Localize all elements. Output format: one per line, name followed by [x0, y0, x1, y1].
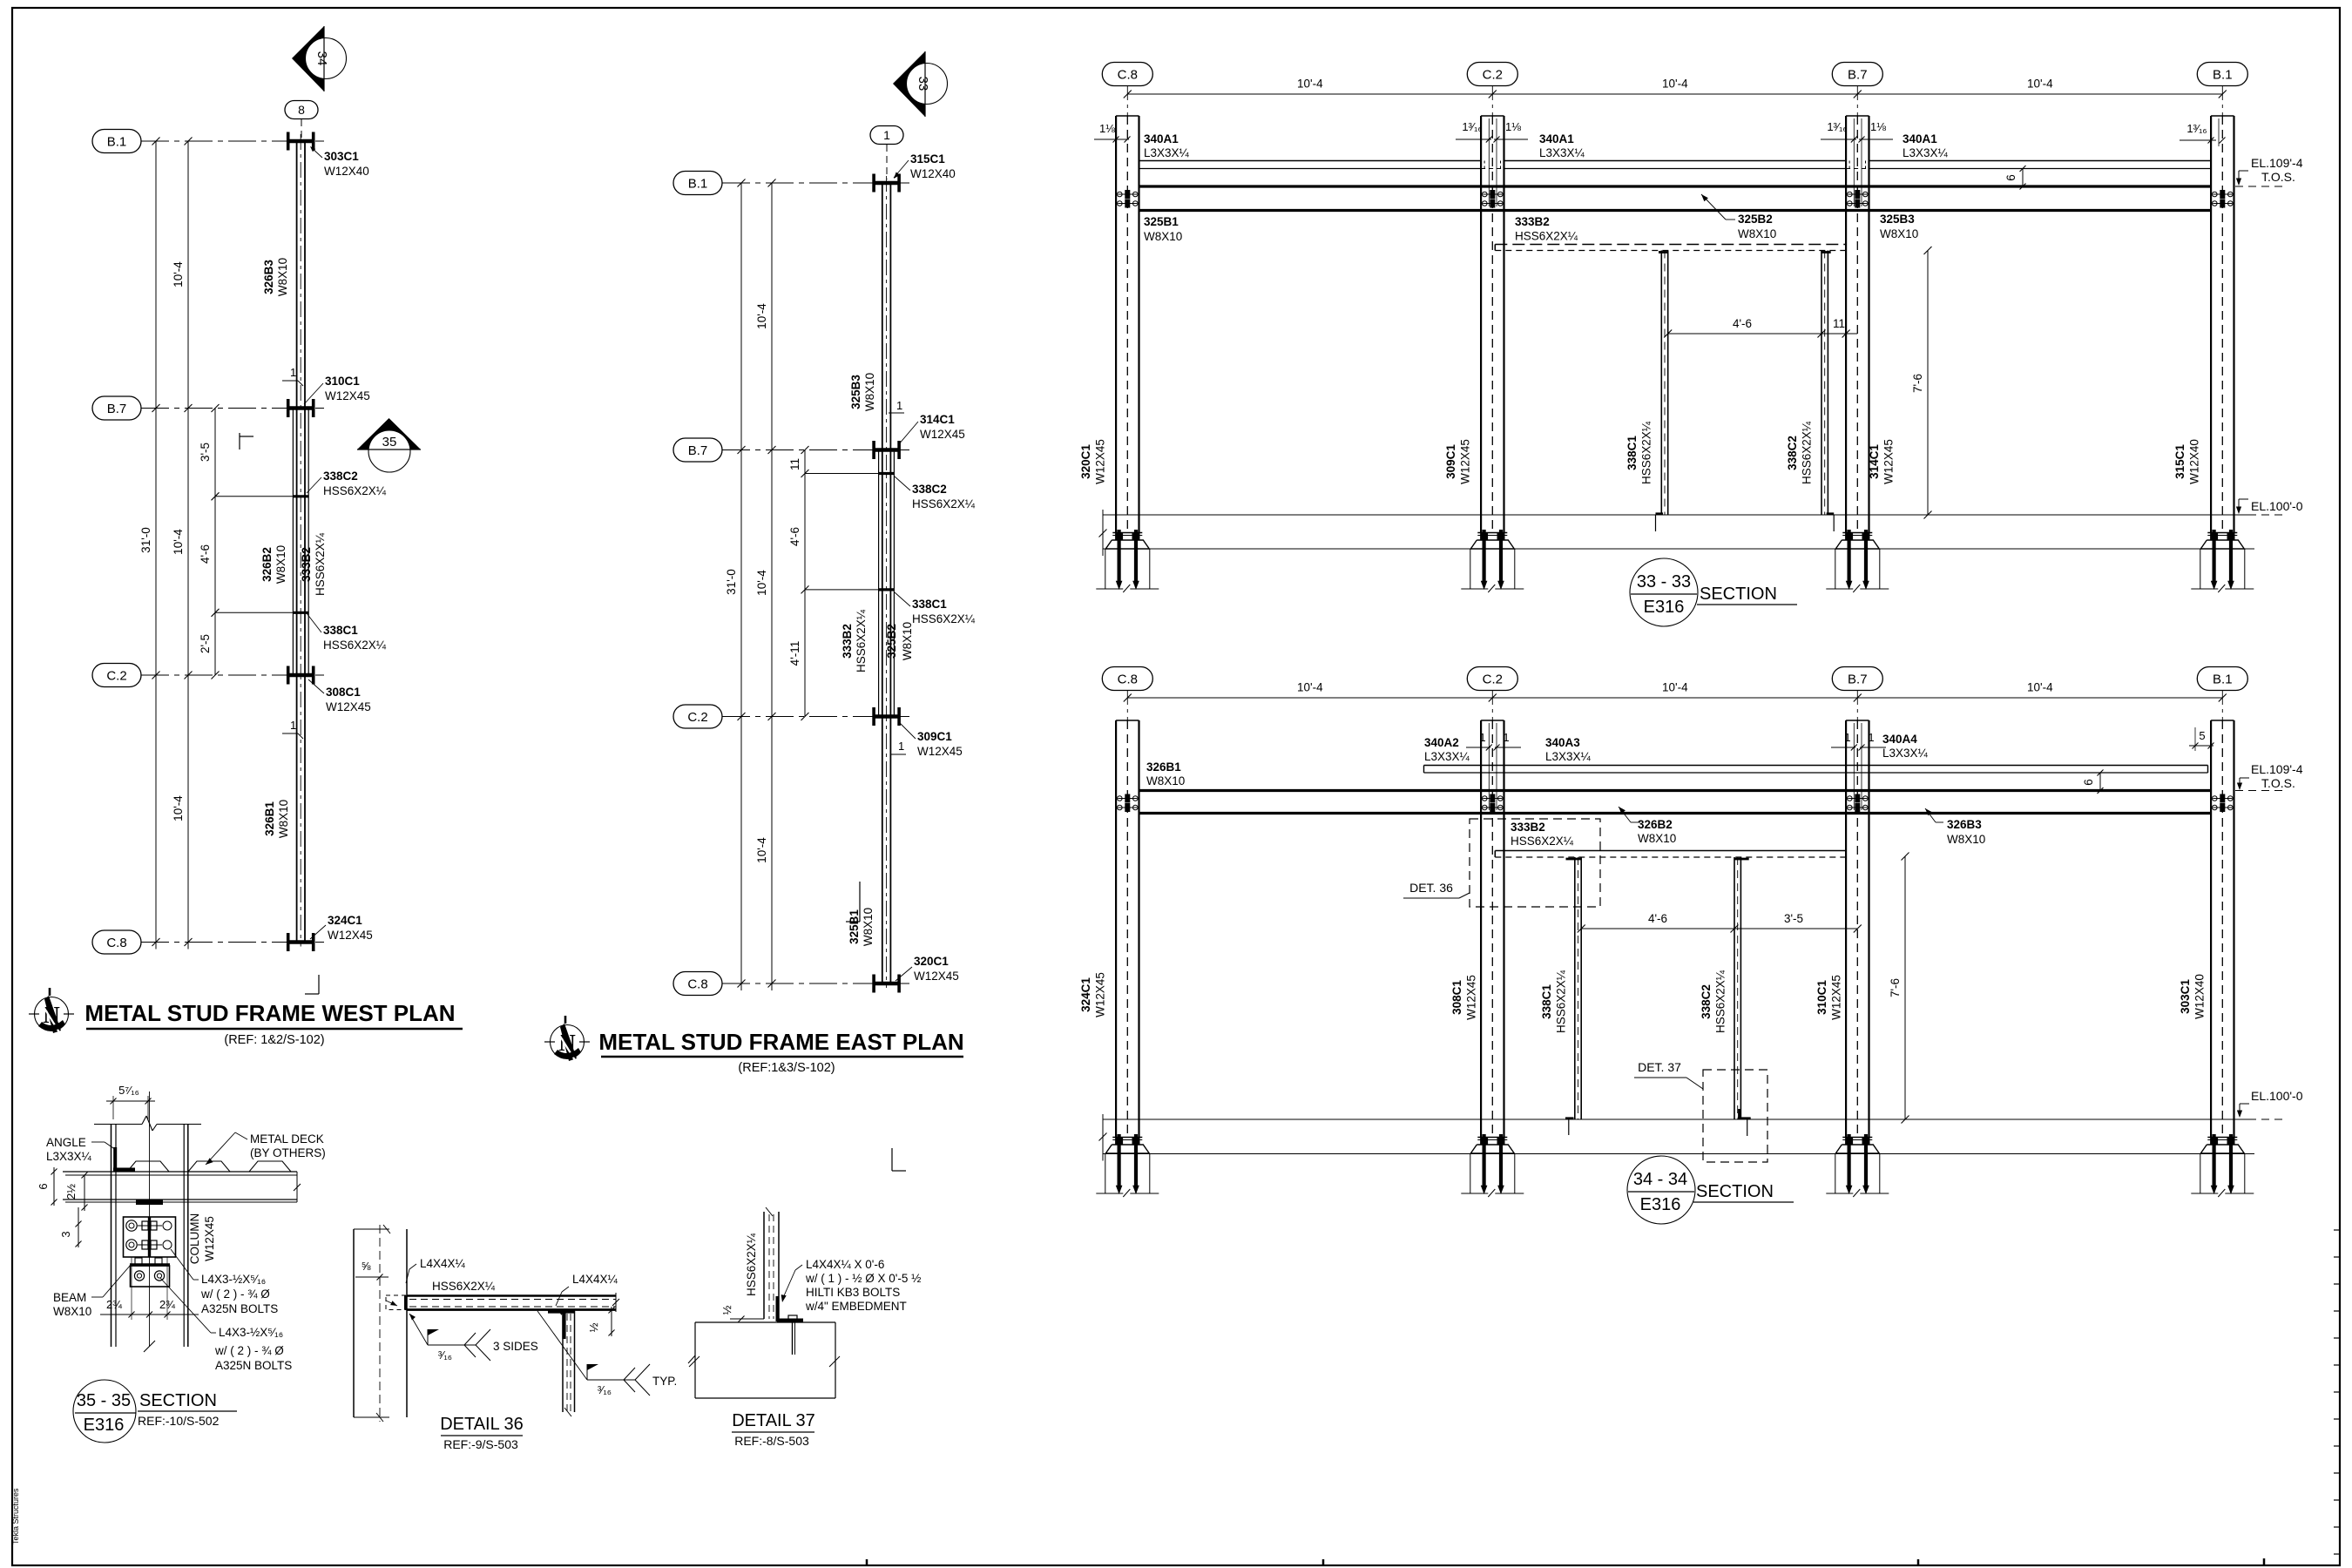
svg-text:B.7: B.7 — [688, 443, 708, 458]
svg-text:3'-5: 3'-5 — [199, 443, 212, 462]
svg-text:338C1: 338C1 — [323, 624, 358, 637]
svg-text:310C1: 310C1 — [325, 375, 360, 388]
svg-text:W8X10: W8X10 — [1146, 774, 1185, 787]
svg-text:3: 3 — [59, 1231, 72, 1237]
svg-text:E316: E316 — [1640, 1195, 1681, 1214]
svg-text:10'-4: 10'-4 — [172, 529, 185, 555]
svg-text:314C1: 314C1 — [1868, 444, 1881, 479]
svg-text:HSS6X2X¼: HSS6X2X¼ — [323, 484, 387, 497]
svg-text:HSS6X2X¼: HSS6X2X¼ — [323, 639, 387, 652]
svg-text:EL.100'-0: EL.100'-0 — [2251, 1089, 2303, 1103]
svg-text:324C1: 324C1 — [328, 914, 362, 927]
svg-text:325B3: 325B3 — [849, 375, 862, 409]
svg-text:W8X10: W8X10 — [1880, 227, 1918, 240]
svg-text:W12X45: W12X45 — [920, 428, 965, 441]
svg-text:W12X45: W12X45 — [1094, 972, 1107, 1017]
svg-text:W8X10: W8X10 — [53, 1305, 91, 1318]
svg-text:METAL DECK: METAL DECK — [250, 1132, 324, 1146]
svg-text:34 - 34: 34 - 34 — [1633, 1170, 1687, 1189]
svg-text:326B2: 326B2 — [260, 547, 274, 582]
svg-text:DET. 37: DET. 37 — [1638, 1060, 1681, 1074]
svg-text:326B1: 326B1 — [263, 801, 276, 836]
svg-text:340A2: 340A2 — [1424, 736, 1459, 749]
svg-text:W12X40: W12X40 — [2193, 974, 2207, 1019]
svg-text:³⁄₁₆: ³⁄₁₆ — [598, 1383, 612, 1396]
svg-text:Tekla Structures: Tekla Structures — [11, 1488, 20, 1544]
svg-text:TYP.: TYP. — [652, 1375, 677, 1388]
svg-text:W12X45: W12X45 — [914, 970, 959, 983]
svg-text:5⁷⁄₁₆: 5⁷⁄₁₆ — [118, 1084, 139, 1097]
svg-text:B.7: B.7 — [107, 402, 127, 416]
svg-text:7'-6: 7'-6 — [1889, 978, 1902, 997]
svg-text:10'-4: 10'-4 — [2027, 681, 2053, 694]
svg-text:320C1: 320C1 — [1079, 444, 1092, 479]
svg-text:L4X3-½X⁵⁄₁₆: L4X3-½X⁵⁄₁₆ — [201, 1273, 266, 1286]
svg-text:W12X40: W12X40 — [2188, 439, 2201, 484]
svg-text:W8X10: W8X10 — [1738, 227, 1776, 240]
svg-text:340A1: 340A1 — [1144, 132, 1179, 145]
svg-text:3'-5: 3'-5 — [1784, 912, 1803, 925]
svg-text:SECTION: SECTION — [139, 1391, 217, 1410]
svg-text:6: 6 — [2082, 779, 2095, 786]
svg-text:326B3: 326B3 — [262, 260, 275, 294]
svg-text:W8X10: W8X10 — [1144, 230, 1182, 243]
svg-text:HSS6X2X¼: HSS6X2X¼ — [745, 1233, 758, 1296]
svg-text:333B2: 333B2 — [1515, 215, 1550, 228]
svg-text:4'-6: 4'-6 — [1648, 912, 1667, 925]
svg-text:w/4" EMBEDMENT: w/4" EMBEDMENT — [805, 1300, 907, 1313]
svg-text:L3X3X¼: L3X3X¼ — [1424, 750, 1470, 763]
svg-text:5: 5 — [2199, 729, 2205, 742]
svg-text:6: 6 — [2004, 174, 2017, 181]
svg-text:33: 33 — [916, 77, 930, 91]
svg-text:REF:-9/S-503: REF:-9/S-503 — [443, 1437, 518, 1451]
svg-text:½: ½ — [720, 1305, 733, 1315]
svg-text:320C1: 320C1 — [914, 955, 949, 968]
svg-text:A325N BOLTS: A325N BOLTS — [201, 1302, 278, 1315]
svg-text:10'-4: 10'-4 — [2027, 78, 2053, 91]
svg-text:4'-6: 4'-6 — [199, 544, 212, 564]
svg-text:B.1: B.1 — [107, 134, 127, 149]
svg-text:A325N BOLTS: A325N BOLTS — [215, 1359, 292, 1372]
svg-text:HILTI KB3 BOLTS: HILTI KB3 BOLTS — [806, 1286, 900, 1299]
svg-text:METAL STUD FRAME WEST PLAN: METAL STUD FRAME WEST PLAN — [84, 1000, 455, 1026]
svg-text:HSS6X2X¼: HSS6X2X¼ — [1511, 835, 1574, 848]
svg-text:325B2: 325B2 — [885, 624, 898, 659]
svg-text:1⅛: 1⅛ — [1870, 120, 1886, 133]
svg-text:B.1: B.1 — [2213, 672, 2233, 686]
svg-text:303C1: 303C1 — [2179, 979, 2192, 1014]
svg-text:326B1: 326B1 — [1146, 760, 1181, 774]
svg-text:W12X45: W12X45 — [326, 700, 371, 713]
svg-text:W12X45: W12X45 — [1882, 439, 1896, 484]
svg-text:C.2: C.2 — [1483, 67, 1503, 82]
svg-text:W8X10: W8X10 — [1638, 832, 1676, 845]
svg-text:B.1: B.1 — [688, 176, 708, 191]
svg-text:1⅛: 1⅛ — [1505, 120, 1521, 133]
svg-text:C.2: C.2 — [1483, 672, 1503, 686]
svg-text:308C1: 308C1 — [1450, 980, 1463, 1015]
svg-text:C.2: C.2 — [106, 668, 126, 683]
svg-text:w/ ( 2 ) - ¾ Ø: w/ ( 2 ) - ¾ Ø — [200, 1288, 270, 1301]
svg-text:W8X10: W8X10 — [276, 258, 289, 296]
svg-text:W12X45: W12X45 — [1459, 439, 1472, 484]
svg-text:B.7: B.7 — [1848, 67, 1868, 82]
svg-text:HSS6X2X¼: HSS6X2X¼ — [1640, 421, 1653, 484]
svg-text:35: 35 — [382, 435, 397, 449]
svg-text:E316: E316 — [84, 1416, 125, 1435]
svg-text:2¾: 2¾ — [106, 1298, 122, 1311]
svg-text:338C1: 338C1 — [1625, 436, 1639, 470]
svg-text:(REF:1&3/S-102): (REF:1&3/S-102) — [738, 1061, 835, 1075]
svg-text:4'-6: 4'-6 — [788, 527, 801, 546]
svg-text:W12X45: W12X45 — [203, 1216, 216, 1261]
svg-text:C.8: C.8 — [106, 936, 126, 950]
svg-text:4'-11: 4'-11 — [788, 641, 801, 666]
svg-text:HSS6X2X¼: HSS6X2X¼ — [432, 1280, 496, 1293]
svg-text:338C1: 338C1 — [1540, 984, 1553, 1019]
svg-text:325B1: 325B1 — [1144, 215, 1179, 228]
svg-text:EL.100'-0: EL.100'-0 — [2251, 499, 2303, 513]
svg-text:HSS6X2X¼: HSS6X2X¼ — [912, 612, 976, 625]
svg-text:340A1: 340A1 — [1903, 132, 1937, 145]
svg-text:L3X3X¼: L3X3X¼ — [46, 1150, 92, 1163]
svg-text:325B3: 325B3 — [1880, 213, 1915, 226]
svg-text:L3X3X¼: L3X3X¼ — [1903, 146, 1949, 159]
svg-text:³⁄₁₆: ³⁄₁₆ — [438, 1348, 452, 1362]
svg-text:HSS6X2X¼: HSS6X2X¼ — [1801, 421, 1814, 484]
svg-text:333B2: 333B2 — [1511, 821, 1545, 834]
svg-text:10'-4: 10'-4 — [172, 261, 185, 287]
svg-text:1⅛: 1⅛ — [1099, 122, 1115, 135]
svg-text:1³⁄₁₆: 1³⁄₁₆ — [2186, 122, 2207, 135]
svg-text:HSS6X2X¼: HSS6X2X¼ — [1555, 970, 1568, 1033]
svg-text:⅝: ⅝ — [362, 1260, 371, 1273]
svg-text:W12X45: W12X45 — [1094, 439, 1107, 484]
svg-text:L3X3X¼: L3X3X¼ — [1539, 146, 1585, 159]
svg-text:35 - 35: 35 - 35 — [77, 1391, 131, 1410]
svg-text:HSS6X2X¼: HSS6X2X¼ — [1515, 230, 1578, 243]
svg-text:W12X45: W12X45 — [325, 389, 370, 402]
svg-text:EL.109'-4: EL.109'-4 — [2251, 156, 2303, 170]
svg-text:HSS6X2X¼: HSS6X2X¼ — [1714, 970, 1727, 1033]
svg-text:W12X45: W12X45 — [328, 929, 373, 942]
svg-text:E316: E316 — [1644, 598, 1685, 617]
svg-text:338C2: 338C2 — [1786, 436, 1799, 470]
svg-text:W12X45: W12X45 — [1830, 975, 1843, 1020]
svg-text:1: 1 — [896, 399, 902, 412]
svg-text:W8X10: W8X10 — [274, 545, 287, 584]
svg-text:W8X10: W8X10 — [862, 908, 875, 946]
svg-text:34: 34 — [314, 51, 329, 66]
svg-text:L3X3X¼: L3X3X¼ — [1882, 747, 1929, 760]
svg-text:6: 6 — [37, 1183, 50, 1189]
svg-text:1: 1 — [290, 366, 296, 379]
svg-text:340A1: 340A1 — [1539, 132, 1574, 145]
svg-text:L3X3X¼: L3X3X¼ — [1545, 750, 1592, 763]
svg-text:315C1: 315C1 — [2173, 444, 2186, 479]
svg-text:W12X40: W12X40 — [324, 165, 369, 178]
svg-text:333B2: 333B2 — [841, 624, 854, 659]
svg-text:1: 1 — [1479, 731, 1485, 744]
svg-text:L4X4X¼ X 0'-6: L4X4X¼ X 0'-6 — [806, 1258, 884, 1271]
svg-text:10'-4: 10'-4 — [755, 303, 768, 329]
svg-text:2'-5: 2'-5 — [199, 634, 212, 653]
svg-text:ANGLE: ANGLE — [46, 1136, 86, 1149]
svg-text:HSS6X2X¼: HSS6X2X¼ — [855, 609, 868, 672]
svg-text:338C1: 338C1 — [912, 598, 947, 611]
svg-text:315C1: 315C1 — [910, 152, 945, 166]
svg-text:DETAIL 36: DETAIL 36 — [440, 1415, 524, 1434]
svg-text:COLUMN: COLUMN — [188, 1213, 201, 1265]
svg-text:326B2: 326B2 — [1638, 818, 1673, 831]
svg-text:340A3: 340A3 — [1545, 736, 1580, 749]
svg-text:308C1: 308C1 — [326, 686, 361, 699]
svg-text:EL.109'-4: EL.109'-4 — [2251, 762, 2303, 776]
svg-text:C.8: C.8 — [1118, 672, 1138, 686]
svg-text:10'-4: 10'-4 — [1297, 681, 1323, 694]
svg-text:L3X3X¼: L3X3X¼ — [1144, 146, 1190, 159]
svg-text:4'-6: 4'-6 — [1733, 317, 1752, 330]
svg-text:338C2: 338C2 — [323, 470, 358, 483]
svg-text:8: 8 — [298, 103, 305, 117]
svg-text:w/ ( 1 ) - ½ Ø X 0'-5 ½: w/ ( 1 ) - ½ Ø X 0'-5 ½ — [805, 1272, 921, 1285]
svg-text:10'-4: 10'-4 — [1297, 78, 1323, 91]
svg-text:11: 11 — [788, 458, 801, 470]
svg-text:SECTION: SECTION — [1696, 1182, 1774, 1201]
svg-text:3 SIDES: 3 SIDES — [493, 1340, 538, 1353]
svg-text:(REF: 1&2/S-102): (REF: 1&2/S-102) — [224, 1033, 324, 1047]
svg-text:W8X10: W8X10 — [1947, 833, 1985, 846]
svg-text:W8X10: W8X10 — [863, 373, 876, 411]
svg-text:HSS6X2X¼: HSS6X2X¼ — [912, 497, 976, 510]
svg-text:1: 1 — [1844, 731, 1850, 744]
svg-text:BEAM: BEAM — [53, 1291, 86, 1304]
svg-text:340A4: 340A4 — [1882, 733, 1917, 746]
svg-text:DETAIL 37: DETAIL 37 — [732, 1411, 815, 1430]
svg-text:333B2: 333B2 — [300, 547, 313, 582]
svg-text:METAL STUD FRAME EAST PLAN: METAL STUD FRAME EAST PLAN — [598, 1029, 963, 1055]
svg-text:T.O.S.: T.O.S. — [2261, 776, 2295, 790]
svg-text:1: 1 — [898, 740, 904, 753]
svg-text:10'-4: 10'-4 — [755, 570, 768, 596]
svg-text:10'-4: 10'-4 — [1662, 681, 1688, 694]
svg-text:31'-0: 31'-0 — [139, 527, 152, 553]
svg-text:T.O.S.: T.O.S. — [2261, 170, 2295, 184]
svg-text:W12X45: W12X45 — [917, 745, 963, 758]
svg-text:W12X45: W12X45 — [1465, 975, 1478, 1020]
svg-text:REF:-10/S-502: REF:-10/S-502 — [138, 1414, 220, 1428]
svg-text:33 - 33: 33 - 33 — [1637, 572, 1691, 591]
svg-text:DET. 36: DET. 36 — [1409, 881, 1453, 895]
svg-text:HSS6X2X¼: HSS6X2X¼ — [314, 532, 327, 596]
svg-text:L4X4X¼: L4X4X¼ — [572, 1273, 618, 1286]
svg-text:309C1: 309C1 — [1444, 444, 1457, 479]
svg-text:31'-0: 31'-0 — [725, 569, 738, 595]
svg-text:1: 1 — [290, 719, 296, 732]
svg-text:C.8: C.8 — [1118, 67, 1138, 82]
svg-text:1: 1 — [1503, 731, 1509, 744]
svg-text:10'-4: 10'-4 — [755, 837, 768, 863]
svg-text:C.8: C.8 — [687, 977, 707, 991]
svg-text:303C1: 303C1 — [324, 150, 359, 163]
svg-text:B.7: B.7 — [1848, 672, 1868, 686]
svg-text:½: ½ — [587, 1322, 600, 1332]
svg-text:310C1: 310C1 — [1815, 980, 1828, 1015]
svg-text:(BY OTHERS): (BY OTHERS) — [250, 1146, 326, 1159]
svg-text:10'-4: 10'-4 — [172, 795, 185, 821]
svg-text:L4X3-½X⁵⁄₁₆: L4X3-½X⁵⁄₁₆ — [219, 1326, 283, 1339]
svg-text:W8X10: W8X10 — [901, 622, 914, 660]
svg-text:1³⁄₁₆: 1³⁄₁₆ — [1827, 120, 1847, 133]
svg-text:B.1: B.1 — [2213, 67, 2233, 82]
svg-text:326B3: 326B3 — [1947, 818, 1982, 831]
svg-text:324C1: 324C1 — [1079, 977, 1092, 1012]
svg-text:325B2: 325B2 — [1738, 213, 1773, 226]
svg-text:SECTION: SECTION — [1700, 585, 1777, 604]
svg-text:338C2: 338C2 — [912, 483, 947, 496]
svg-text:w/ ( 2 ) - ¾ Ø: w/ ( 2 ) - ¾ Ø — [214, 1344, 284, 1357]
svg-text:10'-4: 10'-4 — [1662, 78, 1688, 91]
svg-text:W8X10: W8X10 — [277, 800, 290, 838]
svg-text:338C2: 338C2 — [1700, 984, 1713, 1019]
svg-text:309C1: 309C1 — [917, 730, 952, 743]
svg-text:11: 11 — [1833, 317, 1845, 330]
svg-text:1: 1 — [1868, 731, 1874, 744]
svg-text:2½: 2½ — [64, 1184, 78, 1200]
svg-text:1³⁄₁₆: 1³⁄₁₆ — [1462, 120, 1482, 133]
svg-text:L4X4X¼: L4X4X¼ — [420, 1257, 466, 1270]
svg-text:W12X40: W12X40 — [910, 167, 956, 180]
svg-text:REF:-8/S-503: REF:-8/S-503 — [734, 1434, 809, 1448]
svg-text:325B1: 325B1 — [848, 909, 861, 944]
svg-text:314C1: 314C1 — [920, 413, 955, 426]
svg-text:7'-6: 7'-6 — [1911, 374, 1924, 393]
svg-text:C.2: C.2 — [687, 710, 707, 725]
svg-text:1: 1 — [883, 128, 890, 142]
